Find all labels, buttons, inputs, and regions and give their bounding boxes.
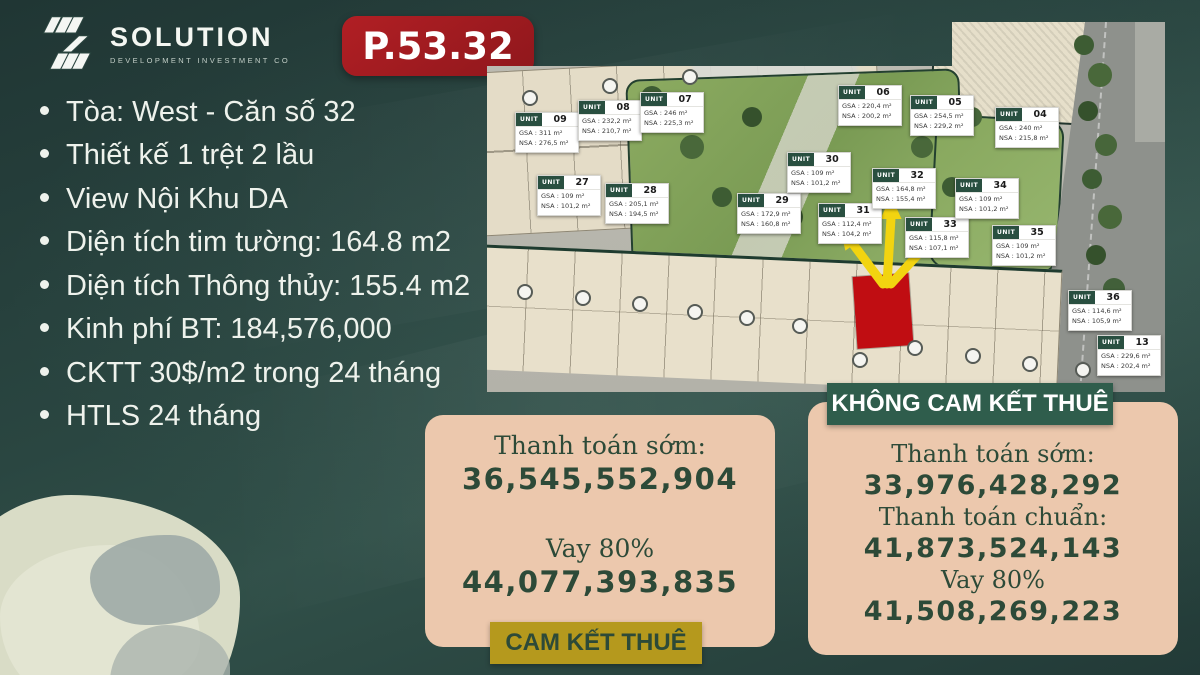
unit-chip: UNIT: [516, 113, 542, 126]
unit-number: 33: [932, 218, 968, 231]
unit-chip: UNIT: [993, 226, 1019, 239]
unit-label-34: UNIT34GSA : 109 m²NSA : 101,2 m²: [955, 178, 1019, 219]
no-commit-header: KHÔNG CAM KẾT THUÊ: [827, 383, 1113, 425]
unit-gsa: GSA : 109 m²: [541, 192, 597, 202]
unit-chip: UNIT: [996, 108, 1022, 121]
detail-text: Diện tích tim tường: 164.8 m2: [66, 226, 451, 258]
plan-marker: [1075, 362, 1091, 378]
unit-nsa: NSA : 200,2 m²: [842, 112, 898, 122]
unit-number: 07: [667, 93, 703, 106]
bullet-dot: [40, 367, 49, 376]
unit-label-09: UNIT09GSA : 311 m²NSA : 276,5 m²: [515, 112, 579, 153]
unit-nsa: NSA : 160,8 m²: [741, 220, 797, 230]
plan-marker: [687, 304, 703, 320]
plan-marker: [907, 340, 923, 356]
plan-marker: [1022, 356, 1038, 372]
unit-number: 27: [564, 176, 600, 189]
unit-chip: UNIT: [538, 176, 564, 189]
pricing-panel-commit: Thanh toán sớm:36,545,552,904Vay 80%44,0…: [425, 415, 775, 647]
unit-number: 08: [605, 101, 641, 114]
unit-nsa: NSA : 202,4 m²: [1101, 362, 1157, 372]
unit-nsa: NSA : 155,4 m²: [876, 195, 932, 205]
unit-nsa: NSA : 101,2 m²: [959, 205, 1015, 215]
unit-number: 28: [632, 184, 668, 197]
payment-value: 36,545,552,904: [425, 462, 775, 496]
unit-code: P.53.32: [362, 25, 513, 68]
payment-value: 41,873,524,143: [808, 533, 1178, 564]
unit-number: 34: [982, 179, 1018, 192]
unit-gsa: GSA : 112,4 m²: [822, 220, 878, 230]
unit-chip: UNIT: [819, 204, 845, 217]
payment-value: 44,077,393,835: [425, 565, 775, 599]
plan-marker: [575, 290, 591, 306]
detail-text: Diện tích Thông thủy: 155.4 m2: [66, 270, 470, 302]
unit-gsa: GSA : 114,6 m²: [1072, 307, 1128, 317]
payment-label: Thanh toán sớm:: [808, 440, 1178, 468]
unit-nsa: NSA : 101,2 m²: [791, 179, 847, 189]
unit-number: 32: [899, 169, 935, 182]
watercolor-splash: [0, 445, 320, 675]
pricing-panel-no-commit: Thanh toán sớm:33,976,428,292Thanh toán …: [808, 402, 1178, 655]
highlighted-unit-32: [853, 273, 914, 349]
details-list: Tòa: West - Căn số 32Thiết kế 1 trệt 2 l…: [26, 96, 496, 444]
detail-text: Tòa: West - Căn số 32: [66, 96, 356, 128]
detail-text: HTLS 24 tháng: [66, 400, 261, 432]
unit-label-13: UNIT13GSA : 229,6 m²NSA : 202,4 m²: [1097, 335, 1161, 376]
unit-gsa: GSA : 164,8 m²: [876, 185, 932, 195]
unit-gsa: GSA : 205,1 m²: [609, 200, 665, 210]
unit-nsa: NSA : 104,2 m²: [822, 230, 878, 240]
detail-item: View Nội Khu DA: [26, 183, 496, 215]
plan-marker: [682, 69, 698, 85]
commit-badge-label: CAM KẾT THUÊ: [505, 629, 686, 657]
detail-text: Kinh phí BT: 184,576,000: [66, 313, 392, 345]
detail-item: CKTT 30$/m2 trong 24 tháng: [26, 357, 496, 389]
slide: SOLUTION DEVELOPMENT INVESTMENT CO P.53.…: [0, 0, 1200, 675]
bullet-dot: [40, 236, 49, 245]
company-subtitle: DEVELOPMENT INVESTMENT CO: [110, 56, 290, 65]
payment-label: Vay 80%: [808, 566, 1178, 594]
unit-number: 35: [1019, 226, 1055, 239]
detail-item: Diện tích Thông thủy: 155.4 m2: [26, 270, 496, 302]
unit-label-07: UNIT07GSA : 246 m²NSA : 225,3 m²: [640, 92, 704, 133]
unit-gsa: GSA : 246 m²: [644, 109, 700, 119]
company-logo: SOLUTION DEVELOPMENT INVESTMENT CO: [38, 12, 290, 74]
unit-gsa: GSA : 220,4 m²: [842, 102, 898, 112]
unit-number: 29: [764, 194, 800, 207]
unit-chip: UNIT: [606, 184, 632, 197]
plan-marker: [517, 284, 533, 300]
bullet-dot: [40, 193, 49, 202]
unit-label-29: UNIT29GSA : 172,9 m²NSA : 160,8 m²: [737, 193, 801, 234]
bullet-dot: [40, 149, 49, 158]
unit-chip: UNIT: [788, 153, 814, 166]
unit-nsa: NSA : 225,3 m²: [644, 119, 700, 129]
unit-gsa: GSA : 232,2 m²: [582, 117, 638, 127]
unit-label-35: UNIT35GSA : 109 m²NSA : 101,2 m²: [992, 225, 1056, 266]
unit-nsa: NSA : 210,7 m²: [582, 127, 638, 137]
unit-nsa: NSA : 101,2 m²: [541, 202, 597, 212]
unit-label-04: UNIT04GSA : 240 m²NSA : 215,8 m²: [995, 107, 1059, 148]
detail-text: Thiết kế 1 trệt 2 lầu: [66, 139, 314, 171]
unit-number: 06: [865, 86, 901, 99]
payment-label: Thanh toán chuẩn:: [808, 503, 1178, 531]
unit-chip: UNIT: [579, 101, 605, 114]
unit-gsa: GSA : 229,6 m²: [1101, 352, 1157, 362]
detail-item: Tòa: West - Căn số 32: [26, 96, 496, 128]
unit-number: 13: [1124, 336, 1160, 349]
detail-text: CKTT 30$/m2 trong 24 tháng: [66, 357, 441, 389]
unit-label-08: UNIT08GSA : 232,2 m²NSA : 210,7 m²: [578, 100, 642, 141]
unit-chip: UNIT: [1098, 336, 1124, 349]
unit-label-28: UNIT28GSA : 205,1 m²NSA : 194,5 m²: [605, 183, 669, 224]
detail-item: Kinh phí BT: 184,576,000: [26, 313, 496, 345]
payment-label: Thanh toán sớm:: [425, 431, 775, 460]
unit-nsa: NSA : 101,2 m²: [996, 252, 1052, 262]
unit-gsa: GSA : 311 m²: [519, 129, 575, 139]
plan-marker: [852, 352, 868, 368]
unit-label-05: UNIT05GSA : 254,5 m²NSA : 229,2 m²: [910, 95, 974, 136]
plan-marker: [739, 310, 755, 326]
bullet-dot: [40, 323, 49, 332]
unit-chip: UNIT: [641, 93, 667, 106]
bullet-dot: [40, 280, 49, 289]
unit-nsa: NSA : 276,5 m²: [519, 139, 575, 149]
no-commit-header-label: KHÔNG CAM KẾT THUÊ: [831, 390, 1108, 418]
plan-marker: [602, 78, 618, 94]
logo-hexagon-icon: [38, 12, 96, 74]
commit-badge: CAM KẾT THUÊ: [490, 622, 702, 664]
unit-gsa: GSA : 109 m²: [791, 169, 847, 179]
unit-number: 30: [814, 153, 850, 166]
payment-value: 41,508,269,223: [808, 596, 1178, 627]
unit-gsa: GSA : 115,8 m²: [909, 234, 965, 244]
unit-gsa: GSA : 109 m²: [996, 242, 1052, 252]
unit-label-33: UNIT33GSA : 115,8 m²NSA : 107,1 m²: [905, 217, 969, 258]
unit-nsa: NSA : 105,9 m²: [1072, 317, 1128, 327]
unit-number: 09: [542, 113, 578, 126]
unit-chip: UNIT: [956, 179, 982, 192]
unit-chip: UNIT: [839, 86, 865, 99]
parking-strip: [1135, 22, 1165, 142]
unit-gsa: GSA : 240 m²: [999, 124, 1055, 134]
shophouse-row: [477, 244, 1063, 394]
unit-number: 36: [1095, 291, 1131, 304]
unit-label-36: UNIT36GSA : 114,6 m²NSA : 105,9 m²: [1068, 290, 1132, 331]
unit-gsa: GSA : 172,9 m²: [741, 210, 797, 220]
unit-nsa: NSA : 194,5 m²: [609, 210, 665, 220]
unit-label-32: UNIT32GSA : 164,8 m²NSA : 155,4 m²: [872, 168, 936, 209]
unit-chip: UNIT: [1069, 291, 1095, 304]
unit-nsa: NSA : 229,2 m²: [914, 122, 970, 132]
unit-nsa: NSA : 107,1 m²: [909, 244, 965, 254]
unit-nsa: NSA : 215,8 m²: [999, 134, 1055, 144]
payment-label: Vay 80%: [425, 534, 775, 563]
plan-marker: [522, 90, 538, 106]
plan-marker: [792, 318, 808, 334]
unit-chip: UNIT: [906, 218, 932, 231]
bullet-dot: [40, 410, 49, 419]
detail-item: Diện tích tim tường: 164.8 m2: [26, 226, 496, 258]
unit-gsa: GSA : 254,5 m²: [914, 112, 970, 122]
detail-item: Thiết kế 1 trệt 2 lầu: [26, 139, 496, 171]
unit-chip: UNIT: [873, 169, 899, 182]
plan-marker: [632, 296, 648, 312]
site-map: UNIT09GSA : 311 m²NSA : 276,5 m²UNIT08GS…: [487, 22, 1165, 392]
bullet-dot: [40, 106, 49, 115]
unit-chip: UNIT: [738, 194, 764, 207]
plan-marker: [965, 348, 981, 364]
unit-label-30: UNIT30GSA : 109 m²NSA : 101,2 m²: [787, 152, 851, 193]
unit-label-06: UNIT06GSA : 220,4 m²NSA : 200,2 m²: [838, 85, 902, 126]
unit-chip: UNIT: [911, 96, 937, 109]
payment-value: 33,976,428,292: [808, 470, 1178, 501]
unit-gsa: GSA : 109 m²: [959, 195, 1015, 205]
unit-label-31: UNIT31GSA : 112,4 m²NSA : 104,2 m²: [818, 203, 882, 244]
company-name: SOLUTION: [110, 22, 290, 53]
unit-label-27: UNIT27GSA : 109 m²NSA : 101,2 m²: [537, 175, 601, 216]
unit-number: 05: [937, 96, 973, 109]
unit-number: 04: [1022, 108, 1058, 121]
detail-text: View Nội Khu DA: [66, 183, 288, 215]
